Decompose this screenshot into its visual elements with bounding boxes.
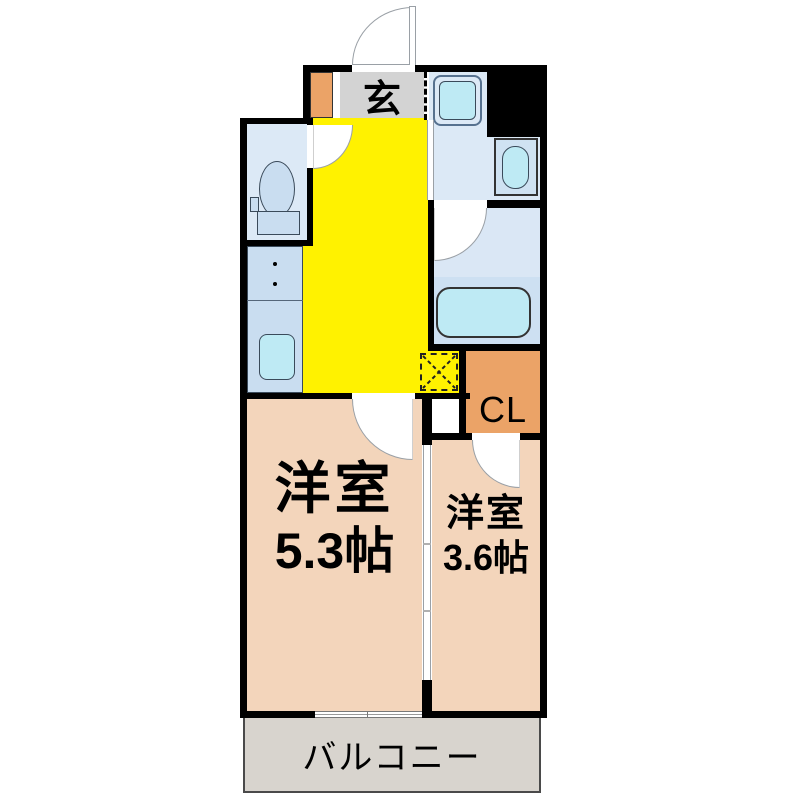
balcony-area: バルコニー	[243, 718, 541, 793]
room-main-name: 洋室	[275, 457, 395, 521]
balcony-window	[315, 711, 422, 718]
window-center-tick	[367, 712, 368, 717]
stove-burner-icon	[273, 282, 277, 286]
washbasin-bowl-icon	[502, 146, 529, 189]
entry-door-swing-arc	[352, 7, 413, 65]
kitchen-sink-icon	[259, 334, 295, 380]
right-wall	[540, 65, 547, 718]
partition-handle-mark	[423, 543, 431, 545]
room-sub-door-threshold	[472, 433, 520, 440]
stove-burner-icon	[273, 262, 277, 266]
refrigerator-space	[420, 353, 458, 391]
closet-label: CL	[479, 389, 527, 431]
room-sub-size: 3.6帖	[443, 536, 529, 580]
room-sub-name: 洋室	[446, 492, 526, 536]
entry-door-leaf	[409, 6, 416, 66]
bathroom-bottom-wall	[428, 344, 547, 351]
closet-left-wall	[459, 344, 466, 440]
floor-plan: 玄 CL	[0, 0, 800, 800]
sliding-partition	[423, 445, 431, 680]
hallway-washroom-door	[427, 120, 434, 200]
room-main-size: 5.3帖	[275, 521, 395, 581]
toilet-flush-icon	[250, 197, 259, 212]
partition-wall-top	[422, 393, 432, 445]
bathroom-door-opening	[433, 200, 487, 208]
genkan-label: 玄	[363, 68, 401, 123]
bathtub-icon	[436, 287, 531, 338]
room-sub-label: 洋室 3.6帖	[432, 492, 540, 580]
genkan-area: 玄	[340, 72, 424, 118]
partition-handle-mark	[423, 610, 431, 612]
balcony-label: バルコニー	[302, 730, 481, 779]
refrigerator-space-x-icon	[422, 355, 456, 389]
shoe-cabinet	[310, 72, 333, 118]
pipe-space-block	[487, 65, 540, 137]
upper-left-wall	[303, 65, 310, 120]
toilet-bowl-icon	[259, 161, 295, 217]
kitchen-counter-divider	[247, 300, 303, 301]
entry-step-gap	[333, 72, 340, 118]
closet-area: CL	[466, 351, 540, 433]
window-glass-line	[315, 714, 422, 715]
washing-machine-icon	[439, 81, 476, 120]
room-main-label: 洋室 5.3帖	[247, 457, 422, 581]
toilet-tank-icon	[257, 211, 300, 235]
left-wall	[240, 118, 247, 718]
